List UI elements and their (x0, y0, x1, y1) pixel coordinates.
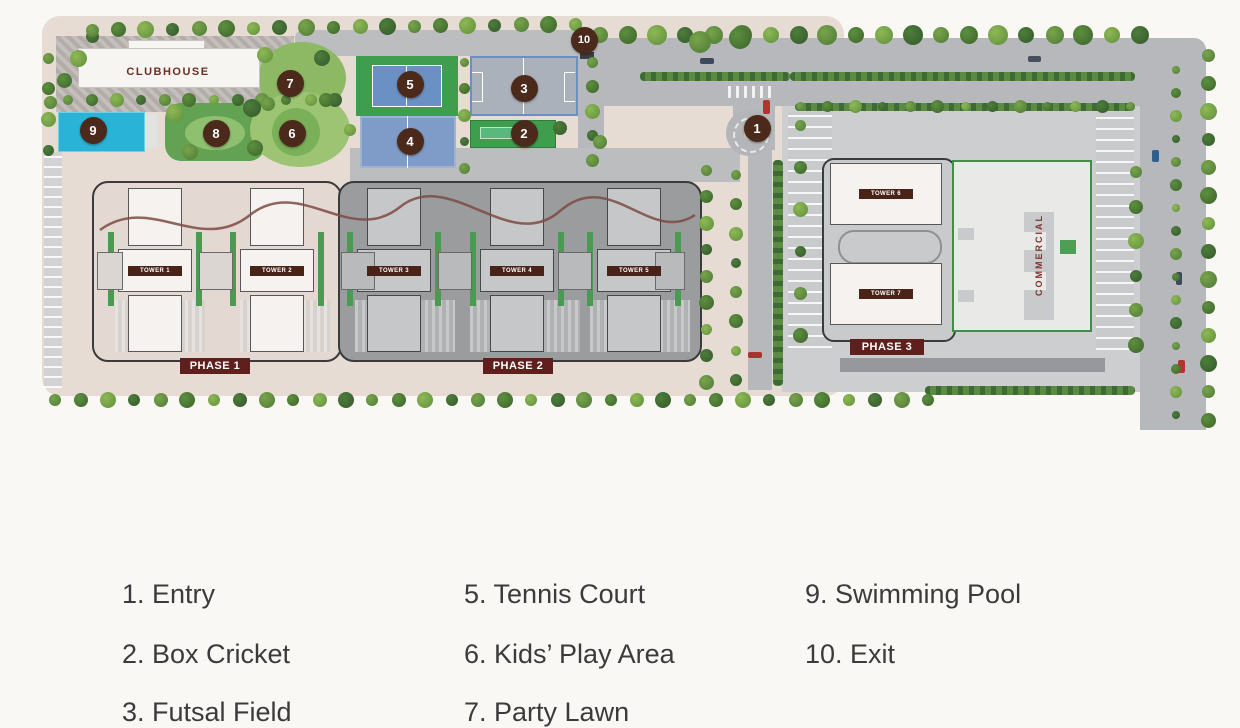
map-marker-6: 6 (279, 120, 306, 147)
tree (154, 393, 168, 407)
map-marker-7: 7 (277, 70, 304, 97)
tree (43, 53, 54, 64)
tree (137, 21, 154, 38)
tree (1202, 133, 1215, 146)
tree (1128, 337, 1144, 353)
tree (314, 50, 330, 66)
tree (795, 246, 806, 257)
tree (1201, 160, 1216, 175)
tree (763, 394, 775, 406)
south-hedge (925, 386, 1135, 395)
tree (586, 80, 599, 93)
tree (540, 16, 557, 33)
tree (392, 393, 406, 407)
internal-hedge (773, 160, 783, 386)
tree (1171, 295, 1181, 305)
map-marker-4: 4 (397, 128, 424, 155)
legend-item-box-cricket: 2. Box Cricket (122, 640, 290, 670)
tower-4-label: TOWER 4 (490, 266, 544, 276)
tree (1202, 217, 1215, 230)
parking-strip-west (44, 152, 62, 388)
tower-block (250, 188, 304, 246)
tree (1171, 364, 1181, 374)
tree (49, 394, 61, 406)
tree (1202, 49, 1215, 62)
tree (793, 202, 808, 217)
tower-6-label: TOWER 6 (859, 189, 913, 199)
tree (313, 393, 327, 407)
tree (699, 295, 714, 310)
tree (379, 18, 396, 35)
road-median-hedge (640, 72, 790, 81)
tower-block (490, 188, 544, 246)
clubhouse-label: CLUBHOUSE (88, 66, 248, 78)
tree (1130, 166, 1142, 178)
tree (525, 394, 537, 406)
tree (630, 393, 644, 407)
tree (701, 324, 712, 335)
futsal-goal-box (564, 72, 575, 102)
tree (905, 101, 916, 112)
tree (319, 93, 333, 107)
tree (848, 27, 864, 43)
tree (1201, 244, 1216, 259)
tree (793, 328, 808, 343)
map-marker-10: 10 (571, 27, 598, 54)
tower-block (250, 295, 304, 352)
map-marker-2: 2 (511, 120, 538, 147)
tree (1131, 26, 1149, 44)
tree (1170, 248, 1182, 260)
tree (730, 374, 742, 386)
tree (74, 393, 88, 407)
tree (553, 121, 567, 135)
tree (903, 25, 923, 45)
tower-block (367, 295, 421, 352)
tree (933, 27, 949, 43)
legend-item-tennis-court: 5. Tennis Court (464, 580, 645, 610)
master-plan-map: CLUBHOUSE COMMERCIAL (0, 0, 1240, 430)
tower-block (128, 295, 182, 352)
tree (128, 394, 140, 406)
tree (931, 100, 944, 113)
tree (261, 97, 275, 111)
tree (731, 258, 741, 268)
tree (729, 227, 743, 241)
tree (1172, 273, 1180, 281)
tree (182, 144, 198, 160)
tree (298, 19, 315, 36)
tree (1200, 355, 1217, 372)
tree (1201, 76, 1216, 91)
tree (1170, 179, 1182, 191)
tree (488, 19, 501, 32)
tree (287, 394, 299, 406)
phase3-label: PHASE 3 (850, 339, 924, 355)
tree (1104, 27, 1120, 43)
tree (1200, 271, 1217, 288)
tree (471, 393, 485, 407)
tree (585, 104, 600, 119)
tower-7-label: TOWER 7 (859, 289, 913, 299)
pool-deck (143, 114, 157, 148)
south-wall (840, 358, 1105, 372)
tree (605, 394, 617, 406)
tree (700, 270, 713, 283)
tree (166, 104, 184, 122)
tree (366, 394, 378, 406)
tree (110, 93, 124, 107)
legend-item-exit: 10. Exit (805, 640, 895, 670)
tower-block (490, 295, 544, 352)
tree (922, 394, 934, 406)
zebra-crossing (728, 86, 772, 98)
map-marker-3: 3 (511, 75, 538, 102)
tree (593, 135, 607, 149)
tree (459, 83, 470, 94)
tree (460, 58, 469, 67)
tree (1200, 187, 1217, 204)
tree (843, 394, 855, 406)
tree (551, 393, 565, 407)
map-marker-5: 5 (397, 71, 424, 98)
tree (822, 101, 833, 112)
north-drive (295, 30, 585, 56)
tree (1201, 413, 1216, 428)
commercial-green-patch (1060, 240, 1076, 254)
tree (868, 393, 882, 407)
tower-garden-strip (318, 232, 324, 306)
tree (794, 287, 807, 300)
tree (699, 216, 714, 231)
tree (1170, 386, 1182, 398)
tree (700, 190, 713, 203)
tree (1014, 100, 1027, 113)
tree (1130, 270, 1142, 282)
tower-block (607, 295, 661, 352)
tree (796, 102, 805, 111)
tree (259, 392, 275, 408)
tree (586, 154, 599, 167)
tree (459, 17, 476, 34)
tree (701, 165, 712, 176)
tree (987, 101, 998, 112)
tree (417, 392, 433, 408)
tree (1171, 88, 1181, 98)
tree (63, 95, 73, 105)
commercial-label: COMMERCIAL (1034, 200, 1044, 296)
tree (43, 145, 54, 156)
mid-block (438, 252, 472, 290)
tree (1043, 102, 1052, 111)
tree (576, 392, 592, 408)
tree (1172, 342, 1180, 350)
tree (305, 94, 317, 106)
tree (233, 393, 247, 407)
tree (1201, 328, 1216, 343)
tree (257, 47, 273, 63)
tree (1170, 110, 1182, 122)
tree (794, 161, 807, 174)
tree (159, 94, 171, 106)
tree (1172, 411, 1180, 419)
tree (100, 392, 116, 408)
tree (514, 17, 529, 32)
tree (731, 346, 741, 356)
tree (988, 25, 1008, 45)
tree (166, 23, 179, 36)
tower-5-label: TOWER 5 (607, 266, 661, 276)
tower-2-label: TOWER 2 (250, 266, 304, 276)
tree (42, 82, 55, 95)
tree (878, 102, 887, 111)
mid-block (558, 252, 592, 290)
tree (701, 244, 712, 255)
tree (790, 26, 808, 44)
tree (961, 102, 970, 111)
tree (1171, 157, 1181, 167)
tree (587, 57, 598, 68)
tree (1126, 102, 1135, 111)
tree (86, 24, 99, 37)
car (763, 100, 770, 114)
tree (41, 112, 56, 127)
tree (729, 27, 751, 49)
tree (70, 50, 87, 67)
tower-block (367, 188, 421, 246)
tree (459, 163, 470, 174)
tree (1172, 66, 1180, 74)
tree (700, 349, 713, 362)
tree (136, 95, 146, 105)
map-marker-9: 9 (80, 117, 107, 144)
tree (460, 137, 469, 146)
tree (814, 392, 830, 408)
phase3-courtyard-path (838, 230, 942, 264)
tree (735, 392, 751, 408)
commercial-kiosk (958, 228, 974, 240)
tree (192, 21, 207, 36)
tree (1129, 200, 1143, 214)
tree (497, 392, 513, 408)
car (1028, 56, 1041, 62)
phase1-label: PHASE 1 (180, 358, 250, 374)
tree (849, 100, 862, 113)
tree (344, 124, 356, 136)
tree (338, 392, 354, 408)
tree (57, 73, 72, 88)
legend-item-party-lawn: 7. Party Lawn (464, 698, 629, 728)
tree (44, 96, 57, 109)
tree (458, 109, 471, 122)
car (700, 58, 714, 64)
mid-block (97, 252, 123, 290)
tree (327, 21, 340, 34)
tree (408, 20, 421, 33)
tower-block (607, 188, 661, 246)
phase2-label: PHASE 2 (483, 358, 553, 374)
tree (1070, 101, 1081, 112)
tree (684, 394, 696, 406)
legend-item-kids-play-area: 6. Kids’ Play Area (464, 640, 675, 670)
tree (446, 394, 458, 406)
tree (689, 31, 711, 53)
car (748, 352, 762, 358)
tree (763, 27, 779, 43)
tree (1172, 204, 1180, 212)
tree (1046, 26, 1064, 44)
parking-strip-phase3-right (1096, 112, 1134, 350)
tree (1171, 226, 1181, 236)
tree (709, 393, 723, 407)
tree (647, 25, 667, 45)
tree (247, 140, 263, 156)
tree (699, 375, 714, 390)
tree (208, 394, 220, 406)
legend-item-swimming-pool: 9. Swimming Pool (805, 580, 1021, 610)
tree (179, 392, 195, 408)
tree (243, 99, 261, 117)
tree (795, 120, 806, 131)
map-marker-1: 1 (744, 115, 771, 142)
tree (1200, 103, 1217, 120)
mid-block (199, 252, 233, 290)
tree (1172, 135, 1180, 143)
map-marker-8: 8 (203, 120, 230, 147)
legend-item-futsal-field: 3. Futsal Field (122, 698, 292, 728)
tree (789, 393, 803, 407)
tree (1170, 317, 1182, 329)
tree (1096, 100, 1109, 113)
legend-item-entry: 1. Entry (122, 580, 215, 610)
tree (731, 170, 741, 180)
futsal-goal-box (472, 72, 483, 102)
tree (1202, 301, 1215, 314)
tree (1202, 385, 1215, 398)
tree (232, 94, 244, 106)
road-median-hedge (790, 72, 1135, 81)
tree (247, 22, 260, 35)
tree (218, 20, 235, 37)
tower-1-label: TOWER 1 (128, 266, 182, 276)
tree (353, 19, 368, 34)
commercial-kiosk (958, 290, 974, 302)
tree (209, 95, 219, 105)
tower-3-label: TOWER 3 (367, 266, 421, 276)
tree (655, 392, 671, 408)
car (1152, 150, 1159, 162)
tower-block (128, 188, 182, 246)
tree (894, 392, 910, 408)
